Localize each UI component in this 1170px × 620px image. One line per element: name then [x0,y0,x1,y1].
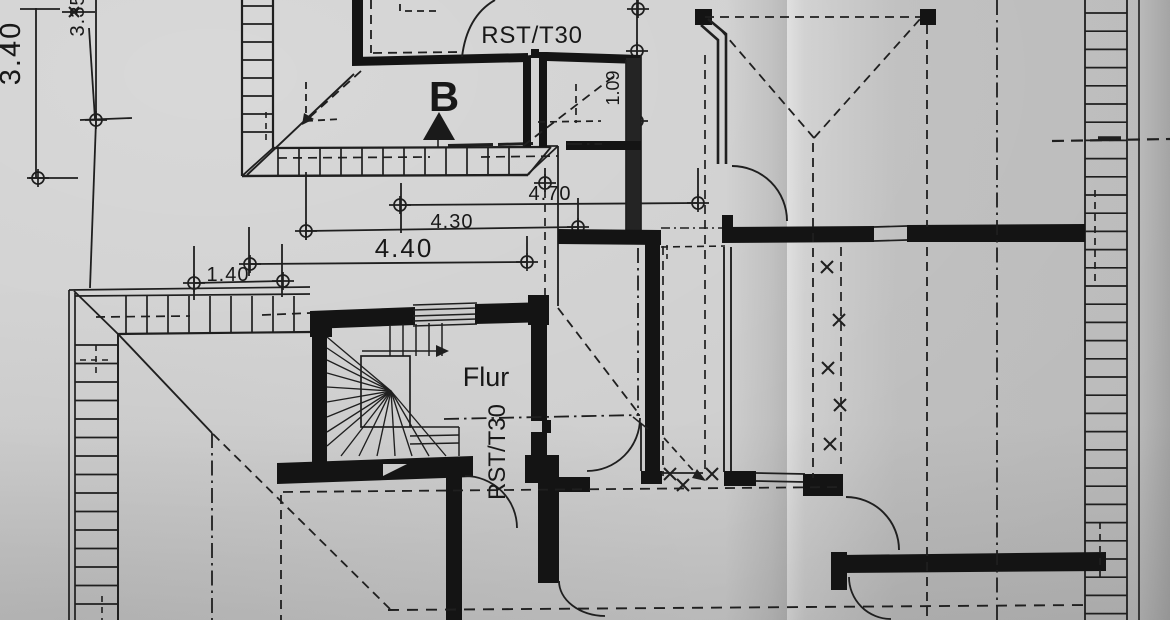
svg-text:1.09: 1.09 [603,70,623,105]
svg-text:B: B [429,73,459,120]
svg-text:4.30: 4.30 [431,211,474,233]
svg-text:RST/T30: RST/T30 [481,22,583,49]
svg-text:3.40: 3.40 [0,21,27,85]
svg-text:1.40: 1.40 [207,264,250,286]
svg-text:3.35: 3.35 [67,0,89,36]
svg-text:Flur: Flur [463,362,510,392]
svg-text:RST/T30: RST/T30 [484,404,511,500]
svg-text:4.40: 4.40 [375,233,434,263]
